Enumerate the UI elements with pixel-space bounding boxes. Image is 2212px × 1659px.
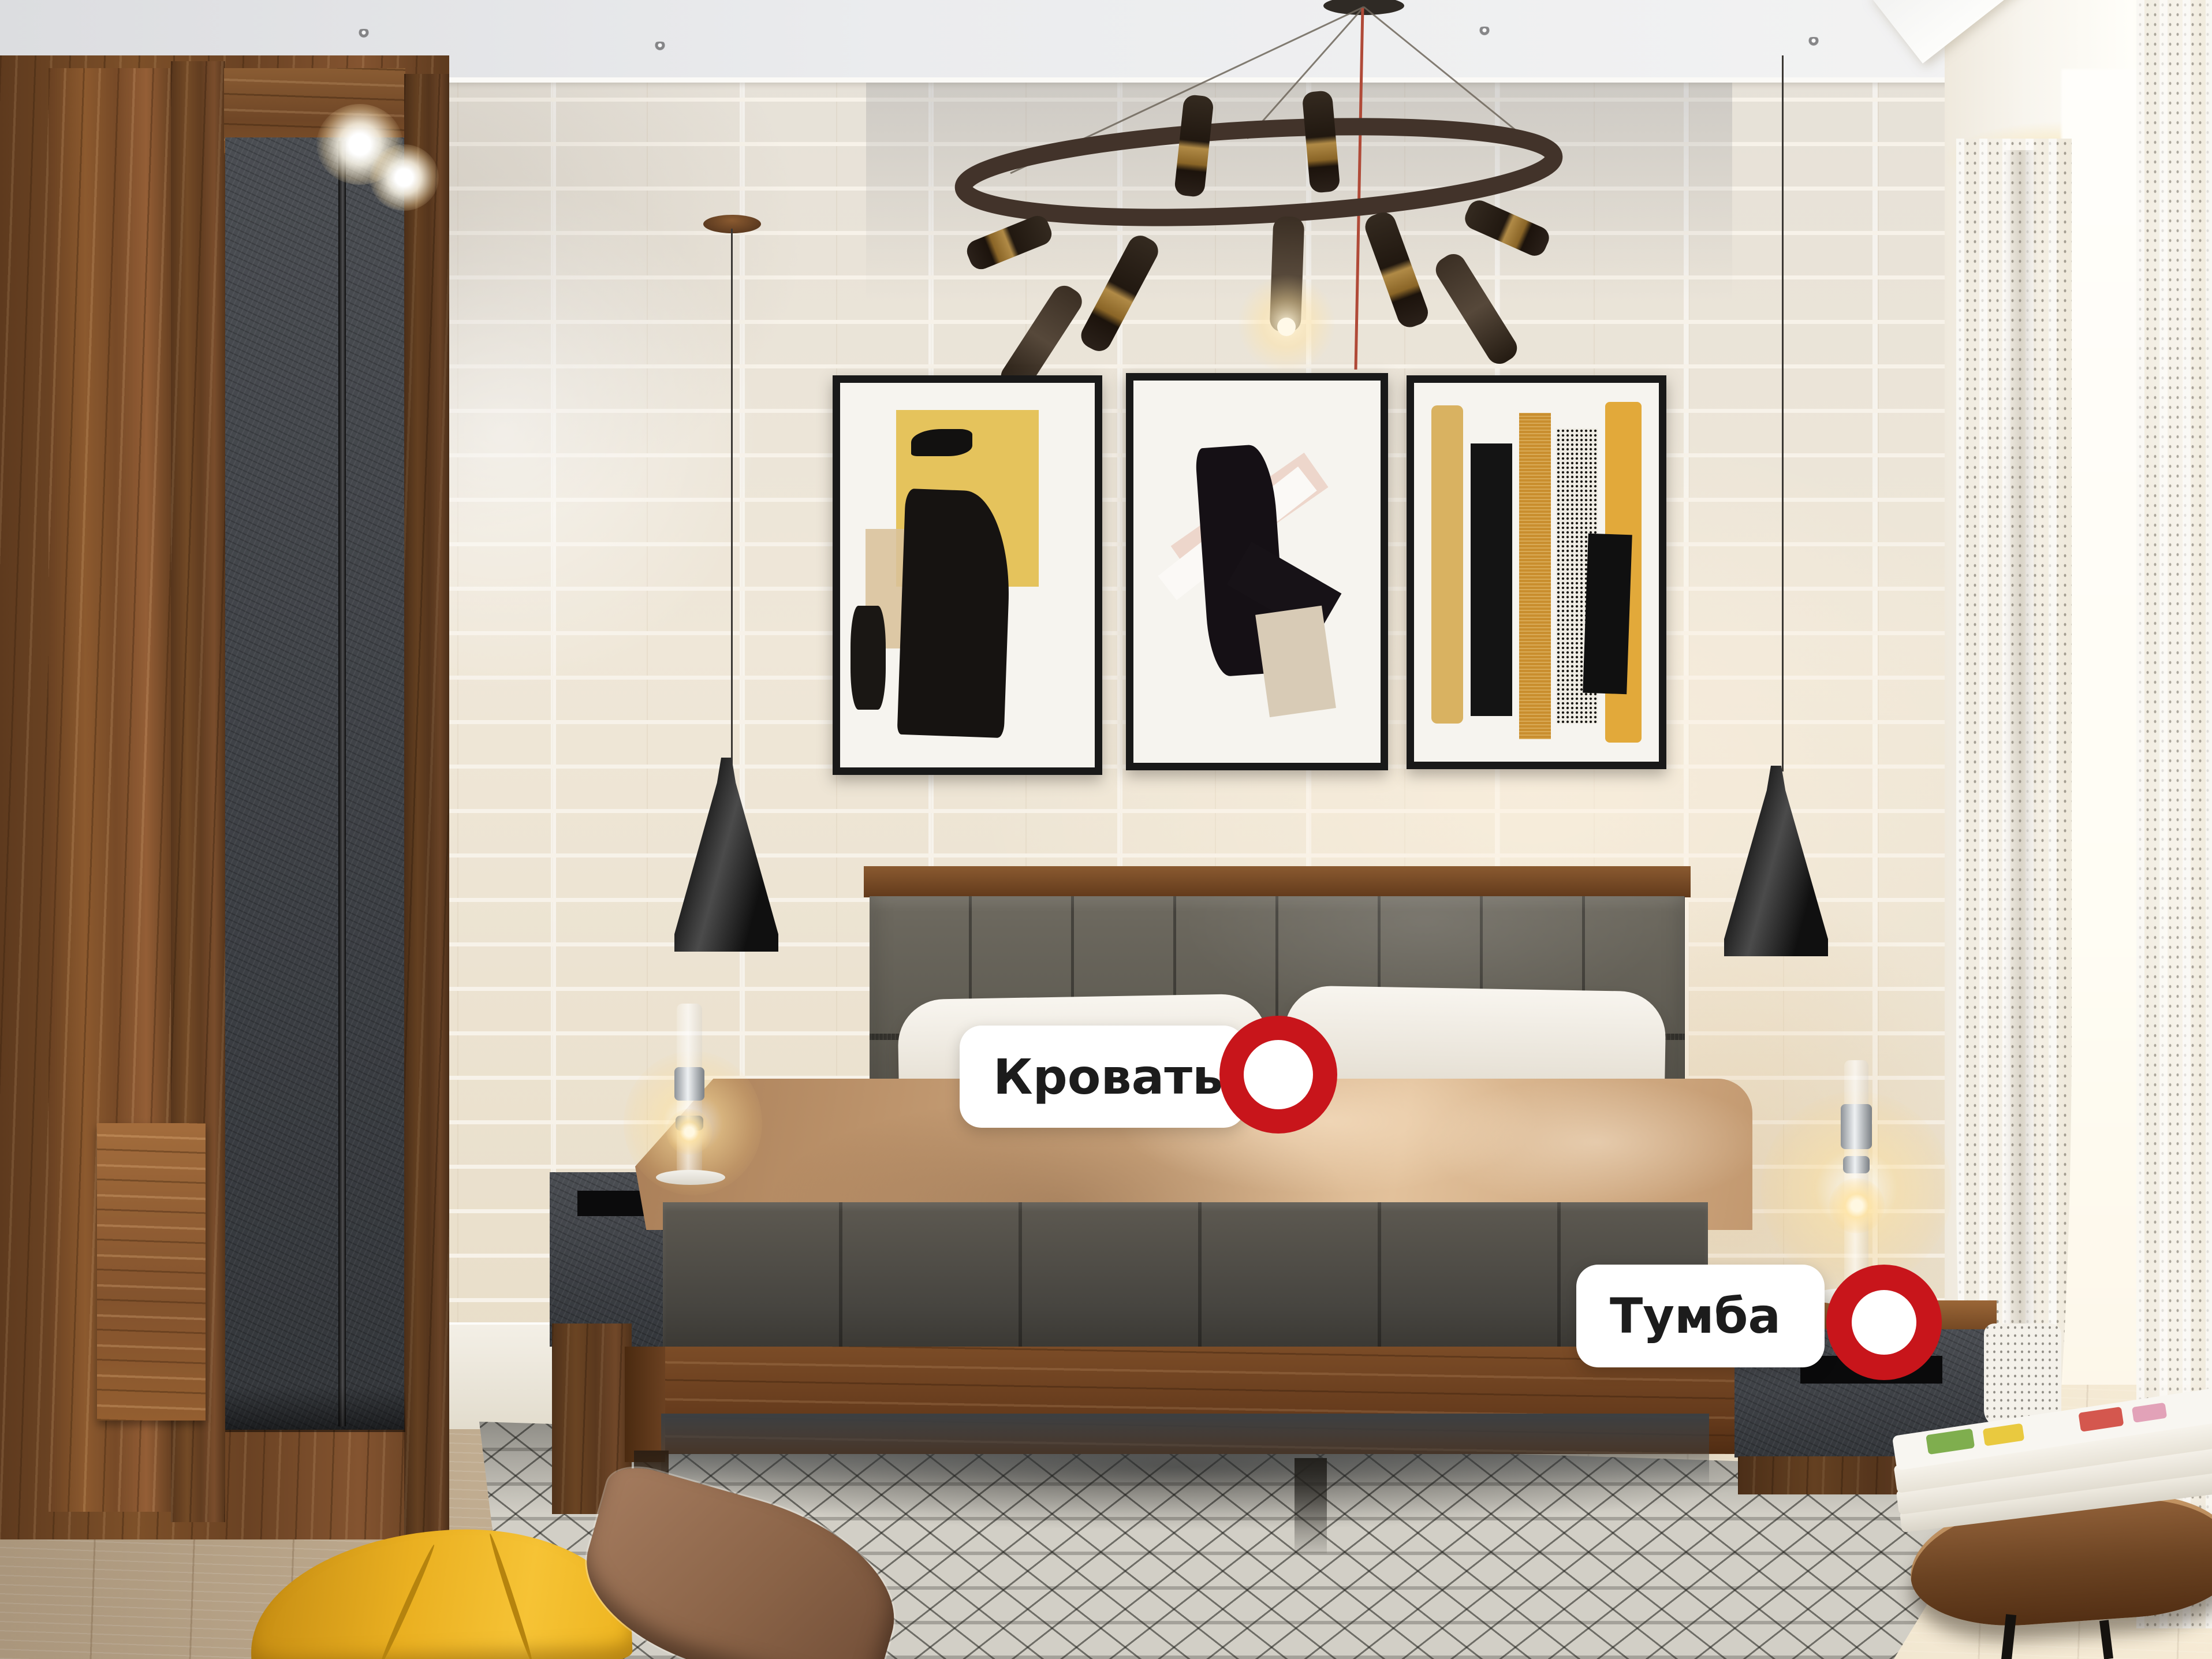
- ceiling-spotlight-icon: [355, 29, 372, 38]
- art-shape: [1471, 443, 1512, 716]
- lamp-bulb: [666, 1109, 713, 1155]
- underbed-panel: [661, 1414, 1709, 1489]
- art-shape: [1583, 534, 1632, 694]
- chandelier: [924, 0, 1594, 416]
- bed-frame-corner: [625, 1347, 665, 1462]
- pendant-cord: [1782, 55, 1784, 771]
- led-glare-icon: [370, 144, 439, 211]
- art-shape: [851, 606, 886, 710]
- hotspot-label-nightstand-text: Тумба: [1610, 1292, 1781, 1340]
- hotspot-label-bed-text: Кровать: [993, 1053, 1223, 1101]
- pendant-cord: [731, 229, 733, 766]
- room-photo: Кровать Тумба: [0, 0, 2212, 1659]
- hotspot-label-nightstand[interactable]: Тумба: [1576, 1265, 1825, 1367]
- bed-bench: [663, 1202, 1708, 1350]
- curtain-sheer-right: [2136, 0, 2212, 1628]
- ceiling-spotlight-icon: [651, 42, 669, 51]
- wardrobe-door-graphite: [225, 137, 405, 1430]
- basket: [1984, 1324, 2061, 1427]
- headboard-top-rail: [864, 866, 1691, 897]
- lamp-bulb: [1829, 1178, 1885, 1233]
- art-shape: [1431, 405, 1463, 724]
- ceiling-spotlight-icon: [1805, 37, 1822, 46]
- art-shape: [1255, 606, 1336, 717]
- wardrobe-bottom-shadow: [225, 1386, 405, 1432]
- art-frame-1: [833, 375, 1102, 775]
- wardrobe-side: [404, 74, 449, 1536]
- table-lamp-right-chrome: [1841, 1104, 1872, 1149]
- art-frame-3: [1407, 375, 1666, 769]
- bed-leg: [1295, 1458, 1327, 1553]
- table-lamp-right-chrome: [1843, 1156, 1870, 1173]
- wardrobe-wood-insert: [97, 1123, 206, 1421]
- art-frame-2: [1126, 373, 1388, 770]
- hotspot-label-bed[interactable]: Кровать: [960, 1026, 1245, 1128]
- wardrobe-door-gap: [338, 141, 346, 1426]
- table-lamp-right: [1844, 1060, 1868, 1291]
- hotspot-marker-nightstand[interactable]: [1826, 1265, 1942, 1380]
- table-lamp-left-chrome: [674, 1067, 704, 1101]
- art-shape: [911, 429, 972, 456]
- table-lamp-left-base: [656, 1170, 725, 1185]
- art-shape: [1519, 413, 1551, 739]
- baseboard: [445, 1322, 560, 1429]
- art-shape: [897, 489, 1012, 738]
- hotspot-marker-bed[interactable]: [1219, 1016, 1337, 1134]
